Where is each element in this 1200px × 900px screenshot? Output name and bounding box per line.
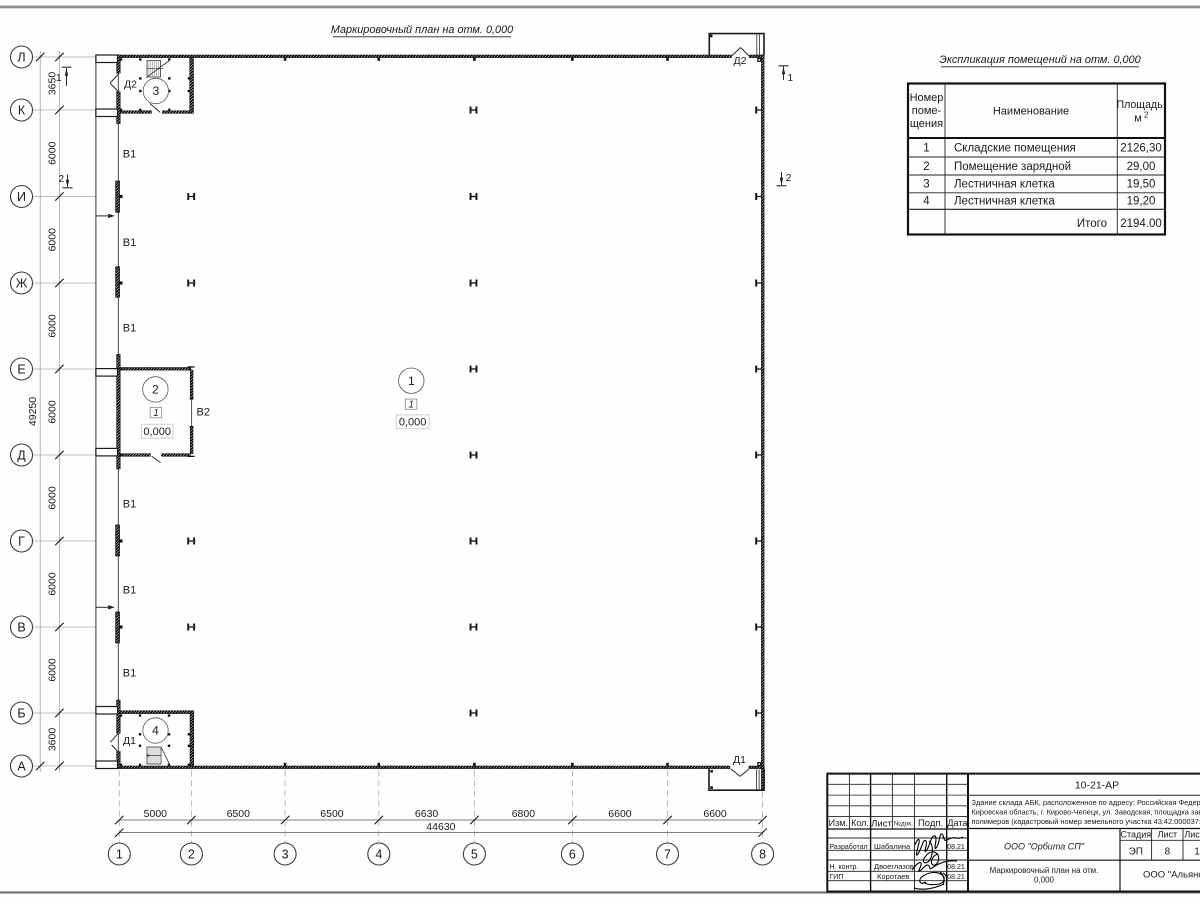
svg-text:В1: В1 [123,148,136,160]
svg-text:Двоеглазов: Двоеглазов [874,862,914,871]
svg-text:Н. контр.: Н. контр. [830,864,859,871]
svg-text:Площадь,: Площадь, [1116,99,1165,111]
svg-text:8: 8 [759,848,766,862]
svg-text:Лестничная клетка: Лестничная клетка [954,196,1055,208]
svg-text:Д1: Д1 [733,754,746,766]
svg-text:щения: щения [910,118,943,130]
svg-text:Ж: Ж [16,277,28,291]
svg-text:А: А [17,760,26,774]
svg-text:6000: 6000 [46,141,58,165]
svg-text:Наименование: Наименование [993,106,1069,118]
svg-text:Шабалина: Шабалина [874,842,911,851]
svg-text:В1: В1 [123,499,136,511]
svg-text:7: 7 [664,848,671,862]
svg-text:В: В [17,621,25,635]
svg-text:2: 2 [786,173,792,184]
svg-text:№док.: №док. [894,821,913,828]
svg-text:1: 1 [923,143,929,155]
svg-text:поме-: поме- [912,105,942,117]
svg-text:4: 4 [923,196,930,208]
svg-text:Кол.: Кол. [851,818,869,828]
svg-text:полимеров (кадастровый номер з: полимеров (кадастровый номер земельного … [972,817,1200,826]
svg-text:Здание склада АБК, расположенн: Здание склада АБК, расположенное по адре… [972,798,1200,807]
svg-text:Разработал: Разработал [830,843,868,851]
svg-text:Л: Л [17,51,25,65]
svg-text:Е: Е [17,363,25,377]
svg-text:Итого: Итого [1077,218,1107,230]
svg-text:6600: 6600 [608,808,632,820]
svg-text:Лестничная клетка: Лестничная клетка [954,179,1055,191]
svg-text:3: 3 [152,84,159,98]
svg-text:В1: В1 [123,237,136,249]
svg-text:ООО "АльянсПроект": ООО "АльянсПроект" [1143,870,1200,881]
svg-text:1: 1 [56,73,62,84]
svg-text:0,000: 0,000 [399,416,427,428]
svg-text:Маркировочный план на отм.: Маркировочный план на отм. [990,866,1099,875]
svg-text:Стадия: Стадия [1120,830,1151,840]
svg-text:Кировская область, г. Кирово-Ч: Кировская область, г. Кирово-Чепецк, ул.… [972,807,1200,816]
svg-text:Д2: Д2 [124,79,137,91]
svg-text:Листов: Листов [1184,830,1200,840]
svg-text:6000: 6000 [46,228,58,252]
svg-text:ГИП: ГИП [830,874,844,881]
svg-text:4: 4 [152,724,159,738]
svg-text:3: 3 [282,848,289,862]
svg-text:08.21: 08.21 [947,864,965,871]
svg-text:К: К [18,104,26,118]
svg-text:6800: 6800 [512,808,536,820]
svg-text:Г: Г [18,535,25,549]
svg-text:1: 1 [116,848,123,862]
svg-text:И: И [17,190,26,204]
svg-text:2126,30: 2126,30 [1120,143,1162,155]
svg-text:В1: В1 [123,323,136,335]
svg-text:4: 4 [375,848,382,862]
svg-text:44630: 44630 [426,821,455,833]
svg-text:6500: 6500 [227,808,251,820]
svg-text:1: 1 [1194,847,1200,858]
svg-text:Д: Д [17,449,26,463]
svg-text:Помещение зарядной: Помещение зарядной [954,161,1071,173]
svg-text:Лист: Лист [1158,830,1178,840]
svg-text:6000: 6000 [46,314,58,338]
svg-text:Д2: Д2 [734,55,747,67]
svg-text:1: 1 [788,73,794,84]
svg-text:2: 2 [923,161,929,173]
svg-text:Складские помещения: Складские помещения [954,143,1076,155]
svg-text:6000: 6000 [46,400,58,424]
svg-text:ЭП: ЭП [1129,847,1143,858]
svg-text:В2: В2 [197,407,210,419]
svg-text:Дата: Дата [947,818,967,828]
svg-text:Д1: Д1 [123,735,136,747]
svg-text:В1: В1 [123,585,136,597]
svg-text:6000: 6000 [46,658,58,682]
svg-text:м: м [1134,113,1142,125]
svg-text:49250: 49250 [27,397,39,426]
svg-text:10-21-АР: 10-21-АР [1075,779,1119,791]
svg-text:08.21: 08.21 [947,844,965,851]
svg-text:6500: 6500 [320,808,344,820]
svg-text:3: 3 [923,179,929,191]
svg-text:2: 2 [1144,111,1149,120]
svg-text:2: 2 [58,174,64,185]
svg-text:ООО "Орбита СП": ООО "Орбита СП" [1004,841,1085,851]
svg-text:5000: 5000 [144,808,168,820]
svg-text:3600: 3600 [46,728,58,752]
svg-text:1: 1 [153,408,159,419]
svg-text:1: 1 [408,399,414,410]
svg-text:Маркировочный план на отм. 0,0: Маркировочный план на отм. 0,000 [331,24,513,36]
svg-text:Коротаев: Коротаев [877,872,909,881]
svg-text:19,50: 19,50 [1127,179,1156,191]
svg-text:Б: Б [17,707,25,721]
svg-text:6600: 6600 [703,808,727,820]
svg-text:В1: В1 [123,668,136,680]
svg-text:Номер: Номер [910,92,944,104]
svg-text:08.21: 08.21 [947,874,965,881]
svg-text:Экспликация помещений на отм.: Экспликация помещений на отм. 0,000 [939,54,1140,66]
svg-text:2194.00: 2194.00 [1120,218,1162,230]
svg-text:19,20: 19,20 [1127,196,1156,208]
svg-text:8: 8 [1165,847,1171,858]
svg-text:1: 1 [408,374,415,388]
svg-text:0,000: 0,000 [1034,876,1055,885]
svg-text:6: 6 [569,848,576,862]
svg-text:Подп.: Подп. [918,818,943,829]
svg-text:Лист: Лист [871,819,892,830]
svg-text:29,00: 29,00 [1127,161,1156,173]
svg-text:6630: 6630 [415,808,439,820]
svg-text:5: 5 [471,848,478,862]
svg-text:2: 2 [188,848,195,862]
svg-text:Изм.: Изм. [829,818,848,828]
svg-text:0,000: 0,000 [143,426,171,438]
svg-text:2: 2 [152,382,159,396]
svg-text:6000: 6000 [46,486,58,510]
svg-text:6000: 6000 [46,572,58,596]
